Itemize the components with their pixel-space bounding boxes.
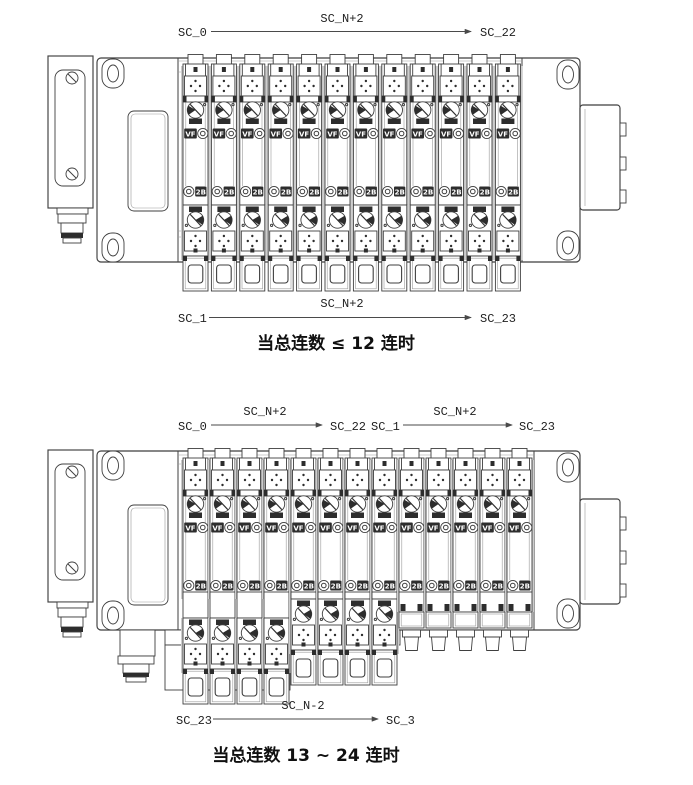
valve-station-8 (370, 449, 399, 600)
valve-station-3 (235, 449, 264, 600)
valve-station-4 (262, 449, 291, 600)
valve-lower-assembly-mid (343, 599, 372, 685)
blank-station-plug (511, 630, 529, 651)
manifold-diagram-13-to-24-stations (48, 449, 626, 705)
right-side-block (580, 499, 626, 604)
lower-connector-flange (118, 656, 154, 664)
valve-body-bridge (183, 592, 208, 618)
station-end-cap (451, 592, 480, 628)
right-side-block (580, 105, 626, 210)
drawing-svg: VF 2B (0, 0, 693, 785)
valve-lower-assembly-long (208, 618, 237, 704)
wiring-unit-window (128, 505, 168, 605)
lower-left-step-block (120, 630, 155, 656)
wiring-unit-window (128, 111, 168, 211)
valve-station-10 (437, 55, 466, 292)
lower-connector-body (123, 664, 149, 673)
caption-up-to-12: 当总连数 ≤ 12 连时 (257, 333, 415, 354)
valve-station-1 (181, 449, 210, 600)
valve-station-5 (295, 55, 324, 292)
valve-body-bridge (210, 592, 235, 618)
valve-body-bridge (372, 592, 397, 599)
valve-body-bridge (291, 592, 316, 599)
valve-station-row (181, 55, 522, 292)
label-sc1: SC_1 (371, 420, 400, 434)
mounting-ear (102, 59, 124, 88)
label-sc22: SC_22 (480, 26, 516, 40)
station-end-cap (397, 592, 426, 628)
valve-body-bridge (264, 592, 289, 618)
label-sc0: SC_0 (178, 26, 207, 40)
blank-station-plug (484, 630, 502, 651)
valve-lower-assembly-long (235, 618, 264, 704)
valve-station-3 (238, 55, 267, 292)
label-sc-n2-left: SC_N+2 (243, 405, 286, 419)
label-sc3: SC_3 (386, 714, 415, 728)
blank-station-plug (430, 630, 448, 651)
valve-body-bridge (237, 592, 262, 618)
valve-lower-assembly-long (181, 618, 210, 704)
valve-station-11 (451, 449, 480, 600)
valve-lower-assembly-mid (370, 599, 399, 685)
valve-lower-assembly-mid (289, 599, 318, 685)
valve-station-7 (343, 449, 372, 600)
valve-station-11 (465, 55, 494, 292)
mounting-ear (557, 231, 579, 260)
label-sc23-bottom: SC_23 (176, 714, 212, 728)
manifold-diagram-12-stations (48, 55, 626, 292)
valve-station-12 (493, 55, 522, 292)
caption-13-to-24: 当总连数 13 ~ 24 连时 (212, 745, 399, 766)
left-end-plate-assembly (48, 450, 93, 637)
valve-station-5 (289, 449, 318, 600)
valve-lower-assembly-long (262, 618, 291, 704)
valve-station-12 (478, 449, 507, 600)
valve-station-13 (505, 449, 534, 600)
valve-lower-assembly-mid (316, 599, 345, 685)
valve-body-bridge (318, 592, 343, 599)
label-sc23: SC_23 (519, 420, 555, 434)
valve-station-7 (351, 55, 380, 292)
mounting-ear (102, 601, 124, 630)
left-end-plate-assembly (48, 56, 93, 243)
station-end-cap (505, 592, 534, 628)
station-end-cap (478, 592, 507, 628)
label-sc22: SC_22 (330, 420, 366, 434)
blank-station-plug (457, 630, 475, 651)
valve-body-bridge (345, 592, 370, 599)
label-sc-n2-right: SC_N+2 (433, 405, 476, 419)
label-sc-n2-bottom: SC_N+2 (320, 297, 363, 311)
valve-station-8 (380, 55, 409, 292)
valve-station-2 (208, 449, 237, 600)
label-sc-n-2: SC_N-2 (281, 699, 324, 713)
valve-manifold-technical-drawing: VF 2B (0, 0, 693, 785)
blank-station-plug (403, 630, 421, 651)
label-sc-n2-top: SC_N+2 (320, 12, 363, 26)
valve-station-1 (181, 55, 210, 292)
label-sc1: SC_1 (178, 312, 207, 326)
lower-connector-ring (123, 673, 149, 677)
station-end-cap (424, 592, 453, 628)
label-sc23: SC_23 (480, 312, 516, 326)
valve-station-6 (316, 449, 345, 600)
mounting-ear (557, 453, 579, 482)
valve-station-row (181, 449, 534, 705)
mounting-ear (102, 451, 124, 480)
mounting-ear (557, 60, 579, 89)
valve-station-6 (323, 55, 352, 292)
valve-station-2 (209, 55, 238, 292)
lower-connector-tip (126, 677, 146, 682)
valve-station-9 (397, 449, 426, 600)
mounting-ear (102, 233, 124, 262)
mounting-ear (557, 599, 579, 628)
valve-station-4 (266, 55, 295, 292)
label-sc0: SC_0 (178, 420, 207, 434)
valve-station-9 (408, 55, 437, 292)
valve-station-10 (424, 449, 453, 600)
